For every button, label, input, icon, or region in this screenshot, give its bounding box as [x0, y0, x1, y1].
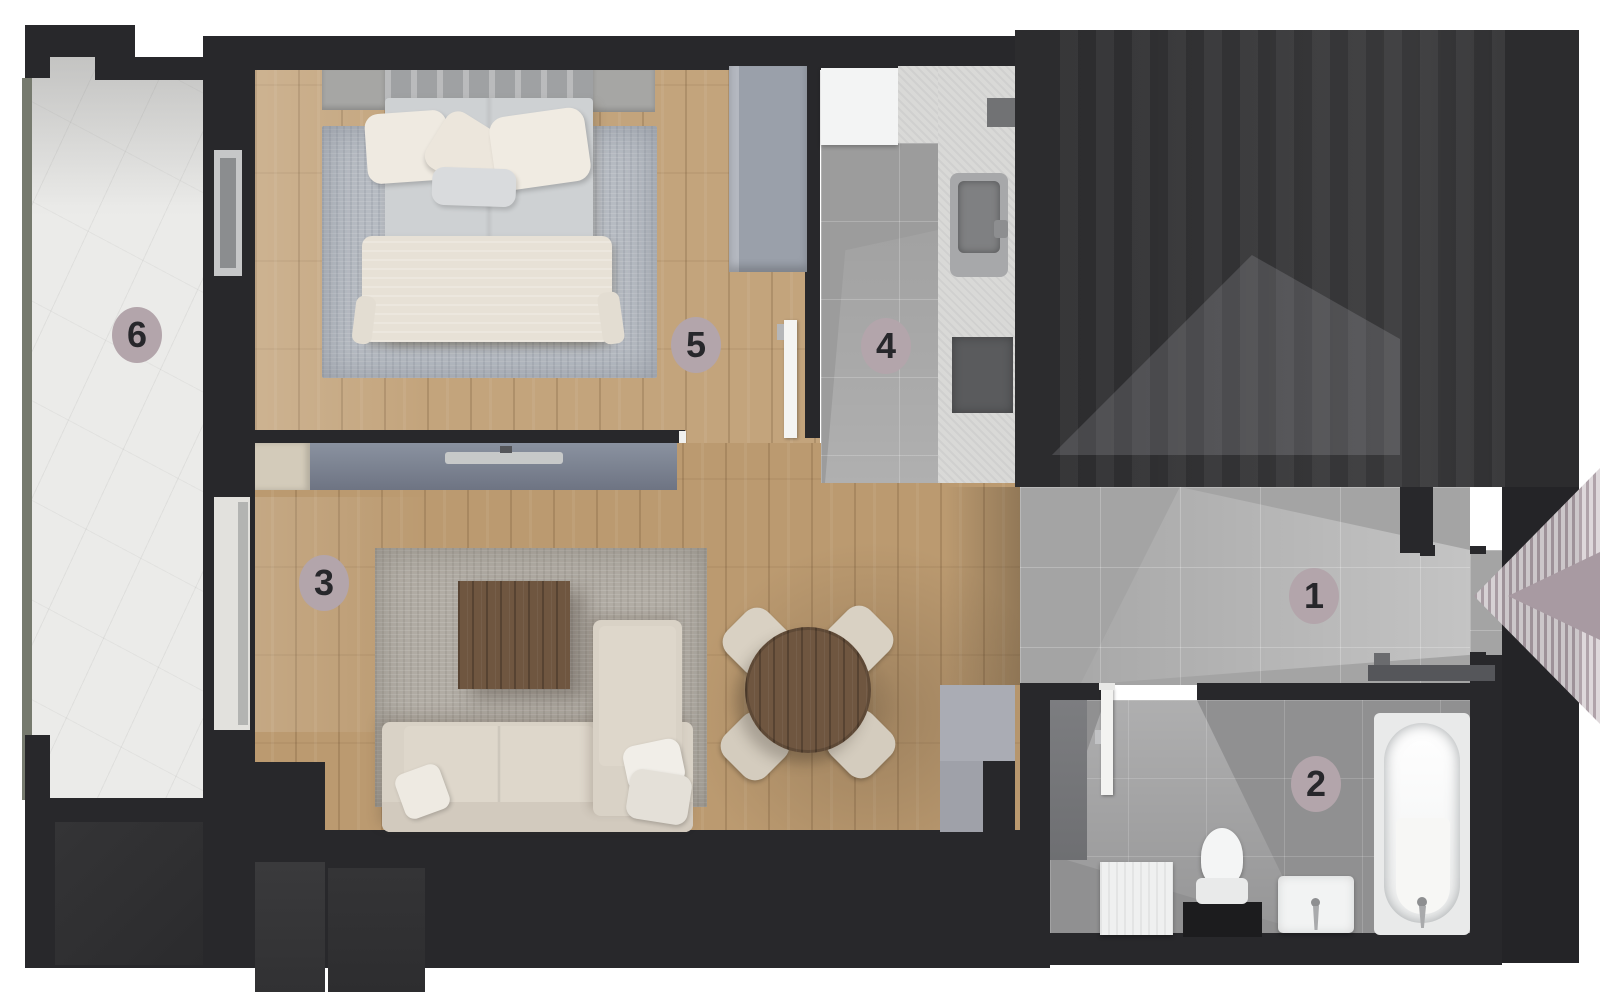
bedroom-door-jamb: [679, 431, 686, 443]
console-cabinet: [255, 443, 310, 490]
wall-top-left-b: [25, 25, 50, 78]
bed-pillow-small: [431, 167, 516, 208]
toilet-tank: [1196, 878, 1248, 904]
bottom-panel-3: [328, 868, 425, 992]
wall-bottom-bath: [1050, 933, 1502, 965]
boiler-unit: [987, 98, 1015, 127]
towel-radiator-hook: [1374, 653, 1390, 665]
wall-hall-bath-right: [1197, 683, 1470, 700]
bathroom-door-handle: [1095, 730, 1101, 744]
bedroom-door: [784, 320, 797, 438]
dining-table: [745, 627, 871, 753]
bathroom-door: [1101, 688, 1113, 795]
sofa-pillow-chaise-2: [624, 767, 693, 826]
marker-balcony[interactable]: 6: [112, 307, 162, 363]
wardrobe: [729, 66, 807, 272]
wall-top-main: [203, 36, 1015, 70]
entrance-door-tab-top: [1470, 546, 1486, 554]
wall-entrance-stub-tab: [1420, 545, 1435, 556]
marker-living-room-label: 3: [314, 562, 334, 604]
kitchen-sink-basin: [958, 181, 1000, 253]
wall-left-lower-thick: [25, 735, 50, 800]
coffee-table: [458, 581, 570, 689]
bottom-panel-1: [55, 822, 203, 965]
entrance-door-tab-bottom: [1470, 652, 1486, 660]
kitchen-counter-top: [898, 66, 938, 143]
gray-panel-bathroom: [1050, 700, 1087, 860]
towel-radiator: [1368, 665, 1495, 681]
bathroom-door-frame: [1099, 683, 1115, 690]
gray-panel-living-lower: [940, 761, 983, 832]
wall-balcony-step: [95, 57, 205, 80]
marker-hallway-label: 1: [1304, 575, 1324, 617]
marker-living-room[interactable]: 3: [299, 555, 349, 611]
bathroom-sink-faucet: [1311, 898, 1320, 907]
wall-right-lower: [1470, 655, 1502, 963]
tv-stand: [500, 446, 512, 453]
wall-living-corner-block: [252, 762, 325, 832]
gray-panel-living-upper: [940, 685, 1015, 761]
kitchen-faucet: [994, 220, 1008, 238]
stove: [952, 337, 1013, 413]
wall-bedroom-right: [805, 36, 820, 438]
washing-machine: [1100, 862, 1173, 935]
marker-kitchen-label: 4: [876, 325, 896, 367]
fridge: [821, 68, 898, 145]
nightstand-left: [322, 70, 385, 110]
wall-balcony-left-strip: [22, 78, 32, 800]
bedroom-door-hinge: [777, 324, 784, 340]
balcony-floor: [32, 57, 203, 800]
bottom-panel-2: [255, 862, 325, 992]
neighbor-zone-stripes: [1060, 30, 1505, 487]
marker-balcony-label: 6: [127, 314, 147, 356]
nightstand-right: [593, 70, 655, 112]
bathtub-faucet: [1417, 897, 1427, 907]
marker-bathroom[interactable]: 2: [1291, 756, 1341, 812]
wall-under-gray-panel: [983, 761, 1015, 832]
living-window-glass: [238, 502, 248, 725]
marker-kitchen[interactable]: 4: [861, 318, 911, 374]
marker-hallway[interactable]: 1: [1289, 568, 1339, 624]
marker-bathroom-label: 2: [1306, 763, 1326, 805]
floor-plan: 1 2 3 4 5 6: [0, 0, 1600, 992]
bedroom-window-glass: [220, 158, 236, 268]
tv-console: [255, 443, 677, 490]
bathroom-vanity: [1183, 902, 1262, 937]
bed-blanket: [362, 236, 612, 342]
marker-bedroom-label: 5: [686, 324, 706, 366]
tv: [445, 452, 563, 464]
marker-bedroom[interactable]: 5: [671, 317, 721, 373]
wall-tv-divider: [253, 430, 685, 443]
